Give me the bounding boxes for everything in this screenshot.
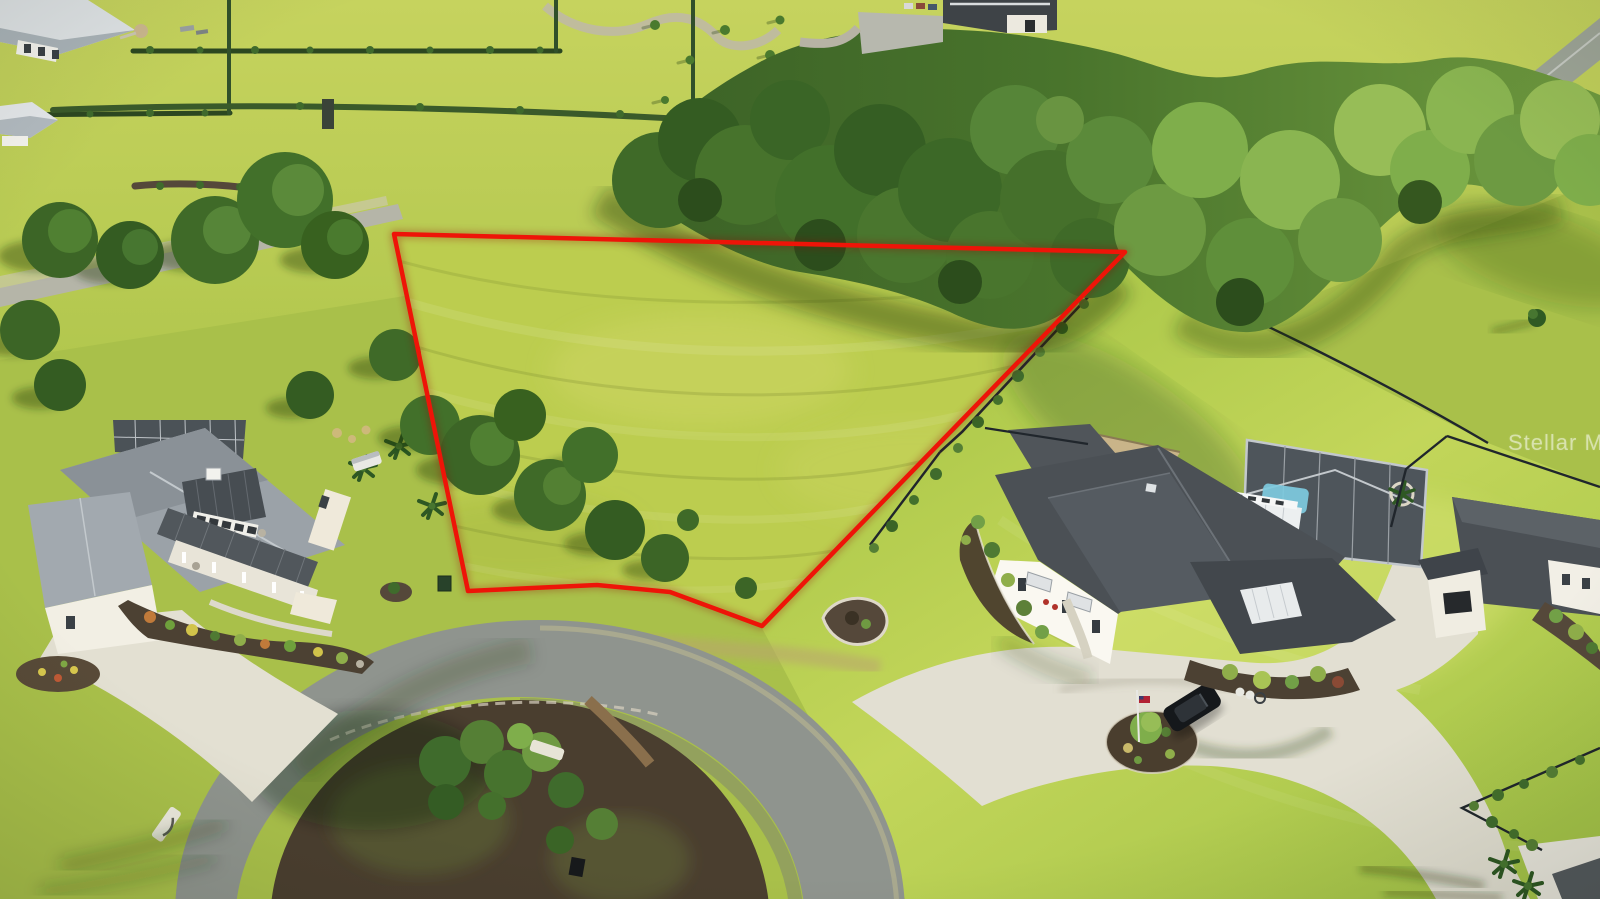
aerial-photo: Stellar MLS xyxy=(0,0,1600,899)
aerial-photo-canvas xyxy=(0,0,1600,899)
vignette xyxy=(0,0,1600,899)
watermark: Stellar MLS xyxy=(1508,430,1600,456)
